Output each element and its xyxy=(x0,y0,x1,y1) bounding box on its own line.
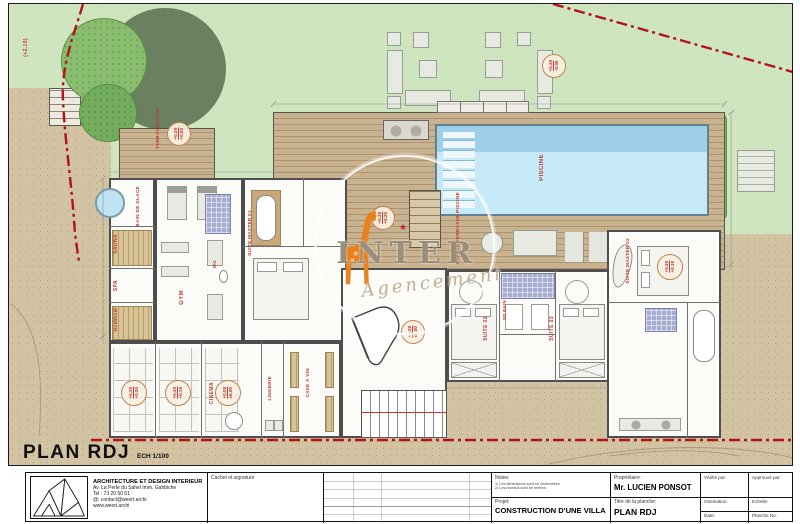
room-label-suite-02: SUITE 02 xyxy=(483,316,489,341)
room-label-lingerie: LINGERIE xyxy=(267,376,272,400)
notes-label: Notes: xyxy=(495,475,610,481)
room-label-sauna: SAUNA xyxy=(113,234,119,254)
date-label: Date: xyxy=(704,513,748,518)
projet-cell: Projet: CONSTRUCTION D'UNE VILLA xyxy=(491,497,610,523)
sheet-title: PLAN RDJ xyxy=(23,442,130,464)
level-marker-tv1: +0.38+0.25 xyxy=(121,380,147,406)
sheet-title-group: PLAN RDJ ECH 1/100 xyxy=(23,442,169,464)
drawing-area: PISCINE xyxy=(8,3,793,466)
sheet-scale: ECH 1/100 xyxy=(137,453,169,460)
level-bottom: +0.25 xyxy=(134,387,140,399)
logo-crystal-icon xyxy=(31,477,87,518)
planche-cell: Planche No. xyxy=(748,511,793,523)
level-bottom: +0.18 xyxy=(178,387,184,399)
proprietaire-value: Mr. LUCIEN PONSOT xyxy=(614,483,700,492)
room-label-bain-de-glace: BAIN DE GLACE xyxy=(135,186,140,227)
room-label-spa: SPA xyxy=(113,280,119,291)
orientation-cell: Orientation: xyxy=(700,497,748,511)
level-marker-gym-deck: +0.38+0.25 xyxy=(167,122,191,146)
level-marker-suite-master-02: +0.38+0.18 xyxy=(657,254,683,280)
level-marker-tv2: +0.38+0.18 xyxy=(165,380,191,406)
proprietaire-label: Propriétaire : xyxy=(614,475,700,481)
room-label-cave-a-vin: CAVE À VIN xyxy=(305,368,310,397)
planche-label: Planche No. xyxy=(752,513,793,518)
company-website: www.weert.archi xyxy=(93,504,207,510)
level-marker-cinema: +0.08±0.00 xyxy=(215,380,241,406)
room-label-sd-bain: SD BAIN xyxy=(502,300,507,320)
company-info: ARCHITECTURE ET DESIGN INTERIEUR Av. La … xyxy=(93,480,207,510)
cachet-label: Cachet et signature xyxy=(211,475,323,481)
level-bottom: +0.25 xyxy=(179,128,185,140)
logo-box xyxy=(30,476,88,519)
titre-cell: Titre de la planche: PLAN RDJ xyxy=(610,497,700,523)
level-marker-garden: +0.38-0.95 xyxy=(542,54,566,78)
titre-label: Titre de la planche: xyxy=(614,499,700,505)
plan-sheet: PISCINE xyxy=(0,0,800,524)
room-label-suite-master-01: SUITE MASTER 01 xyxy=(247,210,252,256)
echelle-cell: Echelle: xyxy=(748,497,793,511)
room-label-gym: GYM xyxy=(179,290,185,305)
proprietaire-cell: Propriétaire : Mr. LUCIEN PONSOT xyxy=(610,473,700,497)
room-label-hammam: HAMMAM xyxy=(113,308,118,331)
cachet-cell: Cachet et signature xyxy=(207,473,323,523)
level-bottom: ±0.00 xyxy=(228,387,234,398)
level-bottom: -0.95 xyxy=(554,61,560,71)
echelle-label: Echelle: xyxy=(752,499,793,504)
orientation-label: Orientation: xyxy=(704,499,748,504)
approuve-cell: Approuvé par: xyxy=(748,473,793,497)
verifie-label: Vérifié par: xyxy=(704,475,748,480)
room-label-suite-03: SUITE 03 xyxy=(549,316,555,341)
room-label-suite-master-02: SUITE MASTER 02 xyxy=(625,238,630,284)
date-cell: Date: xyxy=(700,511,748,523)
note-line-2: 2/ Les niveaux sont en mètres xyxy=(495,486,610,490)
verifie-cell: Vérifié par: xyxy=(700,473,748,497)
level-bottom: +0.18 xyxy=(670,261,676,273)
titre-value: PLAN RDJ xyxy=(614,507,700,517)
approuve-label: Approuvé par: xyxy=(752,475,793,480)
projet-value: CONSTRUCTION D'UNE VILLA xyxy=(495,506,610,515)
watermark-name: INTER xyxy=(327,236,487,271)
slope-level-text: (+2.10) xyxy=(23,38,29,57)
room-label-wc: WC xyxy=(212,260,217,268)
projet-label: Projet: xyxy=(495,499,610,505)
revision-grid xyxy=(323,473,491,523)
watermark-star: ★ xyxy=(399,222,407,233)
notes-cell: Notes: 1/ Les dimensions sont en centimè… xyxy=(491,473,610,497)
room-label-terrasse-gym: TERRASSE GYM xyxy=(155,108,160,149)
title-block: ARCHITECTURE ET DESIGN INTERIEUR Av. La … xyxy=(25,472,793,522)
